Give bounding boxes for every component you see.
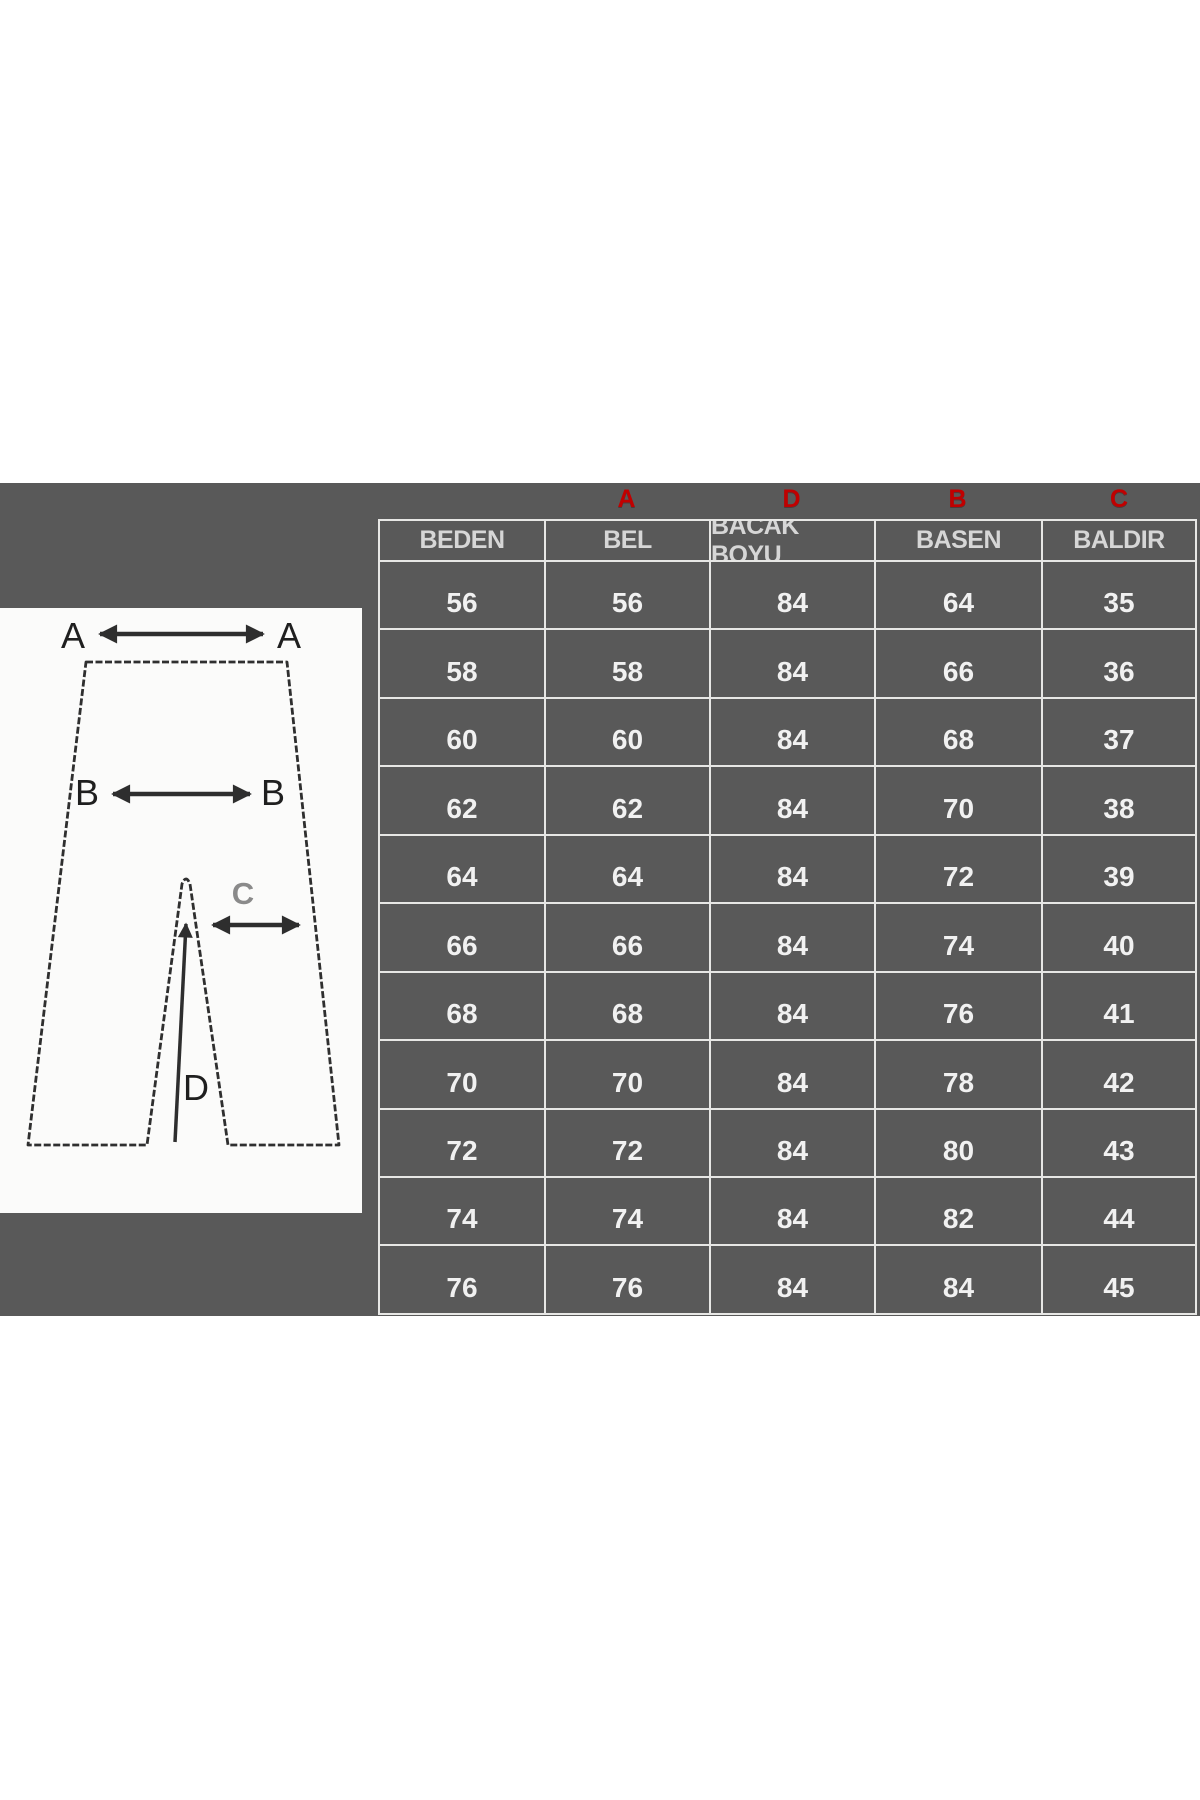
table-cell: 56 bbox=[546, 562, 709, 628]
size-chart-image: ADBC BEDENBELBACAK BOYUBASENBALDIR565684… bbox=[0, 0, 1200, 1800]
table-cell: 72 bbox=[546, 1110, 709, 1176]
table-cell: 84 bbox=[711, 836, 874, 902]
table-cell: 68 bbox=[546, 973, 709, 1039]
table-cell: 76 bbox=[876, 973, 1041, 1039]
size-chart-panel: ADBC BEDENBELBACAK BOYUBASENBALDIR565684… bbox=[0, 483, 1200, 1316]
table-cell: 40 bbox=[1043, 904, 1195, 970]
table-cell: 72 bbox=[876, 836, 1041, 902]
table-cell: 43 bbox=[1043, 1110, 1195, 1176]
label-d: D bbox=[183, 1067, 209, 1108]
table-cell: 76 bbox=[380, 1246, 544, 1312]
table-cell: 44 bbox=[1043, 1178, 1195, 1244]
table-cell: 60 bbox=[380, 699, 544, 765]
table-cell: 41 bbox=[1043, 973, 1195, 1039]
table-cell: 84 bbox=[711, 562, 874, 628]
column-header-baldir: BALDIR bbox=[1043, 521, 1195, 560]
table-cell: 84 bbox=[711, 973, 874, 1039]
table-cell: 84 bbox=[711, 1110, 874, 1176]
column-header-basen: BASEN bbox=[876, 521, 1041, 560]
table-cell: 84 bbox=[711, 1246, 874, 1312]
table-cell: 70 bbox=[380, 1041, 544, 1107]
table-cell: 58 bbox=[546, 630, 709, 696]
column-letter-d: D bbox=[709, 484, 874, 516]
table-cell: 64 bbox=[546, 836, 709, 902]
table-cell: 58 bbox=[380, 630, 544, 696]
table-cell: 68 bbox=[876, 699, 1041, 765]
table-cell: 64 bbox=[380, 836, 544, 902]
table-cell: 70 bbox=[876, 767, 1041, 833]
table-cell: 39 bbox=[1043, 836, 1195, 902]
inseam-arrow bbox=[175, 924, 186, 1142]
table-cell: 66 bbox=[546, 904, 709, 970]
table-cell: 66 bbox=[876, 630, 1041, 696]
pants-measurement-diagram: A A B B C D bbox=[0, 608, 362, 1213]
table-cell: 62 bbox=[380, 767, 544, 833]
size-table: BEDENBELBACAK BOYUBASENBALDIR56568464355… bbox=[378, 519, 1197, 1315]
table-cell: 62 bbox=[546, 767, 709, 833]
column-header-beden: BEDEN bbox=[380, 521, 544, 560]
table-cell: 72 bbox=[380, 1110, 544, 1176]
label-c: C bbox=[232, 876, 254, 911]
table-cell: 74 bbox=[876, 904, 1041, 970]
label-a-left: A bbox=[61, 615, 85, 656]
table-cell: 84 bbox=[711, 904, 874, 970]
label-b-right: B bbox=[261, 772, 285, 813]
column-letter-a: A bbox=[544, 484, 709, 516]
column-header-bacak-boyu: BACAK BOYU bbox=[711, 521, 874, 560]
column-letter-empty bbox=[378, 484, 544, 516]
table-cell: 38 bbox=[1043, 767, 1195, 833]
label-b-left: B bbox=[75, 772, 99, 813]
table-cell: 82 bbox=[876, 1178, 1041, 1244]
table-cell: 80 bbox=[876, 1110, 1041, 1176]
table-cell: 42 bbox=[1043, 1041, 1195, 1107]
table-cell: 84 bbox=[711, 1041, 874, 1107]
table-cell: 56 bbox=[380, 562, 544, 628]
table-cell: 35 bbox=[1043, 562, 1195, 628]
table-cell: 60 bbox=[546, 699, 709, 765]
table-cell: 36 bbox=[1043, 630, 1195, 696]
table-cell: 64 bbox=[876, 562, 1041, 628]
table-cell: 74 bbox=[380, 1178, 544, 1244]
table-cell: 84 bbox=[711, 630, 874, 696]
table-cell: 68 bbox=[380, 973, 544, 1039]
table-cell: 66 bbox=[380, 904, 544, 970]
label-a-right: A bbox=[277, 615, 301, 656]
column-letter-c: C bbox=[1041, 484, 1197, 516]
table-cell: 84 bbox=[711, 767, 874, 833]
column-header-bel: BEL bbox=[546, 521, 709, 560]
table-cell: 45 bbox=[1043, 1246, 1195, 1312]
table-cell: 74 bbox=[546, 1178, 709, 1244]
table-cell: 84 bbox=[711, 1178, 874, 1244]
column-letter-b: B bbox=[874, 484, 1041, 516]
table-cell: 78 bbox=[876, 1041, 1041, 1107]
table-cell: 70 bbox=[546, 1041, 709, 1107]
table-cell: 76 bbox=[546, 1246, 709, 1312]
table-cell: 37 bbox=[1043, 699, 1195, 765]
column-letter-row: ADBC bbox=[378, 484, 1197, 516]
table-cell: 84 bbox=[876, 1246, 1041, 1312]
table-cell: 84 bbox=[711, 699, 874, 765]
pants-outline-drawing: A A B B C D bbox=[0, 608, 362, 1213]
